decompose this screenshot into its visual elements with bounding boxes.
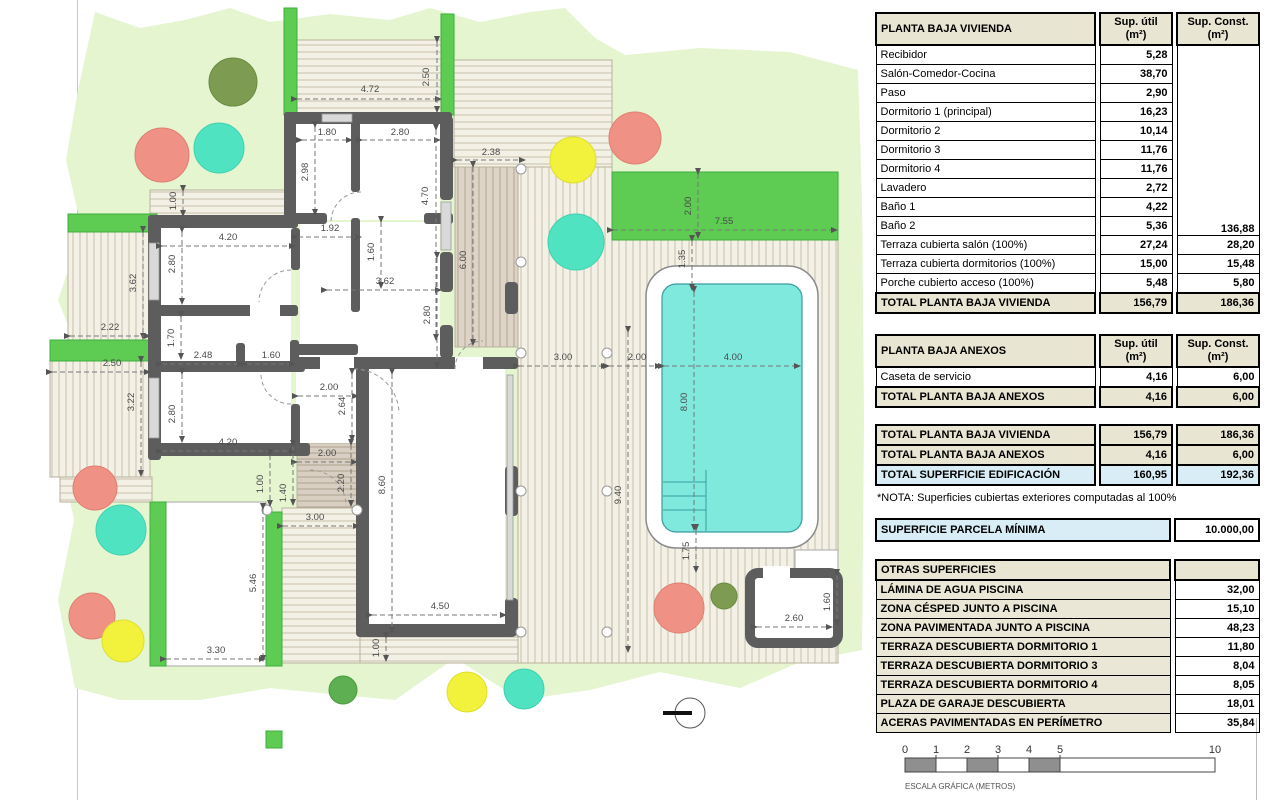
room-label-cell: Dormitorio 2 (876, 122, 1095, 141)
dim-label: 3.00 (554, 352, 573, 363)
hedge (284, 8, 297, 115)
dim-label: 2.00 (320, 382, 339, 393)
total-label-cell: TOTAL PLANTA BAJA VIVIENDA (876, 293, 1095, 313)
dim-label: 2.80 (167, 405, 178, 424)
area-value-cell: 27,24 (1100, 236, 1172, 255)
dim-label: 4.20 (219, 232, 238, 243)
architectural-plan-sheet: { "plan": { "dims": ["4.72","2.50","1.80… (0, 0, 1280, 800)
dim-label: 2.60 (785, 613, 804, 624)
scale-tick-label: 4 (1026, 744, 1032, 756)
dim-label: 1.00 (371, 639, 382, 658)
deck-south-strip (360, 637, 518, 663)
dim-label: 3.62 (128, 274, 139, 293)
surface-label-cell: TERRAZA DESCUBIERTA DORMITORIO 1 (876, 638, 1170, 657)
scale-tick-label: 5 (1057, 744, 1063, 756)
area-value-cell: 28,20 (1177, 236, 1259, 255)
hedge (441, 14, 454, 115)
terrace-dorm-west-2 (50, 361, 150, 477)
table-otras-superficies: OTRAS SUPERFICIES LÁMINA DE AGUA PISCINA… (875, 559, 1260, 733)
merged-const-cell: 136,88 (1177, 45, 1259, 236)
table-title: PLANTA BAJA ANEXOS (876, 335, 1095, 367)
dim-label: 2.48 (194, 350, 213, 361)
table-total-row: TOTAL PLANTA BAJA VIVIENDA156,79186,36 (876, 293, 1259, 313)
dim-label: 4.50 (431, 601, 450, 612)
parcela-value-cell: 10.000,00 (1175, 519, 1259, 541)
dim-label: 2.50 (103, 358, 122, 369)
dim-label: 1.80 (318, 127, 337, 138)
dim-label: 2.00 (318, 448, 337, 459)
dim-label: 1.60 (262, 350, 281, 361)
tree (73, 466, 117, 510)
total-value-cell: 192,36 (1177, 465, 1259, 485)
surface-value-cell: 11,80 (1175, 638, 1259, 657)
room-label-cell: Salón-Comedor-Cocina (876, 65, 1095, 84)
nota-text: *NOTA: Superficies cubiertas exteriores … (875, 492, 1258, 504)
room-label-cell: Recibidor (876, 45, 1095, 65)
surface-label-cell: ACERAS PAVIMENTADAS EN PERÍMETRO (876, 714, 1170, 733)
table-title: PLANTA BAJA VIVIENDA (876, 13, 1095, 45)
table-parcela-minima: SUPERFICIE PARCELA MÍNIMA 10.000,00 (875, 518, 1260, 542)
dim-label: 6.00 (458, 251, 469, 270)
table-total-row: TOTAL PLANTA BAJA ANEXOS4,166,00 (876, 445, 1259, 465)
tree (504, 669, 544, 709)
surface-label-cell: LÁMINA DE AGUA PISCINA (876, 580, 1170, 600)
tree (329, 676, 357, 704)
tree (447, 672, 487, 712)
scale-tick-label: 2 (964, 744, 970, 756)
table-row: TERRAZA DESCUBIERTA DORMITORIO 38,04 (876, 657, 1259, 676)
dim-label: 2.80 (422, 306, 433, 325)
dim-label: 4.72 (361, 84, 380, 95)
area-value-cell: 5,36 (1100, 217, 1172, 236)
surface-value-cell: 35,84 (1175, 714, 1259, 733)
table-row: LÁMINA DE AGUA PISCINA32,00 (876, 580, 1259, 600)
tree (102, 620, 144, 662)
room-label-cell: Terraza cubierta salón (100%) (876, 236, 1095, 255)
area-value-cell: 4,16 (1100, 367, 1172, 387)
dim-label: 1.75 (681, 542, 692, 561)
room-label-cell: Terraza cubierta dormitorios (100%) (876, 255, 1095, 274)
dim-label: 1.60 (822, 593, 833, 612)
surface-value-cell: 8,04 (1175, 657, 1259, 676)
dim-label: 9.40 (613, 486, 624, 505)
area-value-cell: 15,00 (1100, 255, 1172, 274)
dim-label: 1.00 (255, 475, 266, 494)
surface-label-cell: PLAZA DE GARAJE DESCUBIERTA (876, 695, 1170, 714)
area-tables-panel: PLANTA BAJA VIVIENDA Sup. útil(m²) Sup. … (875, 12, 1258, 733)
dim-label: 2.00 (628, 352, 647, 363)
dim-label: 2.80 (391, 127, 410, 138)
dim-label: 1.70 (166, 329, 177, 348)
room-label-cell: Paso (876, 84, 1095, 103)
salon-glazing (507, 375, 513, 600)
scale-tick-label: 3 (995, 744, 1001, 756)
column-header-sup-util: Sup. útil(m²) (1100, 13, 1172, 45)
table-row: TERRAZA DESCUBIERTA DORMITORIO 111,80 (876, 638, 1259, 657)
dim-label: 8.60 (377, 476, 388, 495)
parcela-label-cell: SUPERFICIE PARCELA MÍNIMA (876, 519, 1170, 541)
table-grand-total-row: TOTAL SUPERFICIE EDIFICACIÓN160,95192,36 (876, 465, 1259, 485)
area-value-cell: 11,76 (1100, 160, 1172, 179)
surface-value-cell: 8,05 (1175, 676, 1259, 695)
table-row: Terraza cubierta salón (100%)27,2428,20 (876, 236, 1259, 255)
total-label-cell: TOTAL PLANTA BAJA VIVIENDA (876, 425, 1095, 445)
room-label-cell: Dormitorio 3 (876, 141, 1095, 160)
surface-value-cell: 32,00 (1175, 580, 1259, 600)
hedge (266, 512, 282, 666)
room-label-cell: Lavadero (876, 179, 1095, 198)
table-row: SUPERFICIE PARCELA MÍNIMA 10.000,00 (876, 519, 1259, 541)
room-label-cell: Dormitorio 4 (876, 160, 1095, 179)
table-row: ZONA CÉSPED JUNTO A PISCINA15,10 (876, 600, 1259, 619)
table-row: ZONA PAVIMENTADA JUNTO A PISCINA48,23 (876, 619, 1259, 638)
total-value-cell: 186,36 (1177, 425, 1259, 445)
area-value-cell: 10,14 (1100, 122, 1172, 141)
north-marker-icon (663, 698, 705, 728)
total-label-cell: TOTAL SUPERFICIE EDIFICACIÓN (876, 465, 1095, 485)
area-value-cell: 2,72 (1100, 179, 1172, 198)
room-label-cell: Dormitorio 1 (principal) (876, 103, 1095, 122)
surface-label-cell: ZONA PAVIMENTADA JUNTO A PISCINA (876, 619, 1170, 638)
surface-value-cell: 15,10 (1175, 600, 1259, 619)
table-total-row: TOTAL PLANTA BAJA VIVIENDA156,79186,36 (876, 425, 1259, 445)
dim-label: 2.80 (167, 255, 178, 274)
column-header-sup-const: Sup. Const.(m²) (1177, 335, 1259, 367)
area-value-cell: 15,48 (1177, 255, 1259, 274)
tree (194, 123, 244, 173)
dim-label: 2.98 (300, 163, 311, 182)
surface-value-cell: 18,01 (1175, 695, 1259, 714)
total-value-cell: 186,36 (1177, 293, 1259, 313)
surface-label-cell: TERRAZA DESCUBIERTA DORMITORIO 4 (876, 676, 1170, 695)
area-value-cell: 5,48 (1100, 274, 1172, 294)
dim-label: 2.00 (683, 197, 694, 216)
dim-label: 2.22 (101, 322, 120, 333)
total-value-cell: 4,16 (1100, 445, 1172, 465)
total-label-cell: TOTAL PLANTA BAJA ANEXOS (876, 387, 1095, 407)
dim-label: 3.00 (306, 512, 325, 523)
room-label-cell: Caseta de servicio (876, 367, 1095, 387)
dim-label: 2.64 (337, 397, 348, 416)
hedge (68, 214, 157, 232)
total-value-cell: 4,16 (1100, 387, 1172, 407)
total-label-cell: TOTAL PLANTA BAJA ANEXOS (876, 445, 1095, 465)
total-value-cell: 156,79 (1100, 425, 1172, 445)
tree (654, 583, 704, 633)
table-resumen: TOTAL PLANTA BAJA VIVIENDA156,79186,36 T… (875, 424, 1260, 486)
dim-label: 1.00 (168, 192, 179, 211)
tree (550, 137, 596, 183)
dim-label: 7.55 (715, 216, 734, 227)
total-value-cell: 6,00 (1177, 445, 1259, 465)
column-header-sup-util: Sup. útil(m²) (1100, 335, 1172, 367)
table-total-row: TOTAL PLANTA BAJA ANEXOS4,166,00 (876, 387, 1259, 407)
dim-label: 2.20 (336, 474, 347, 493)
total-value-cell: 160,95 (1100, 465, 1172, 485)
area-value-cell: 4,22 (1100, 198, 1172, 217)
scale-caption: ESCALA GRÁFICA (METROS) (905, 782, 1016, 791)
dim-label: 1.40 (278, 484, 289, 503)
area-value-cell: 5,80 (1177, 274, 1259, 294)
dim-label: 1.92 (321, 223, 340, 234)
pool (646, 266, 818, 548)
dim-label: 2.50 (421, 68, 432, 87)
dim-label: 3.30 (207, 645, 226, 656)
dim-label: 1.60 (366, 243, 377, 262)
total-value-cell: 6,00 (1177, 387, 1259, 407)
area-value-cell: 38,70 (1100, 65, 1172, 84)
scale-tick-label: 10 (1209, 744, 1221, 756)
table-planta-baja-vivienda: PLANTA BAJA VIVIENDA Sup. útil(m²) Sup. … (875, 12, 1260, 314)
table-row: ACERAS PAVIMENTADAS EN PERÍMETRO35,84 (876, 714, 1259, 733)
table-row: Caseta de servicio4,166,00 (876, 367, 1259, 387)
scale-tick-label: 0 (902, 744, 908, 756)
tree (609, 112, 661, 164)
tree (548, 214, 604, 270)
table-row: Porche cubierto acceso (100%)5,485,80 (876, 274, 1259, 294)
graphic-scale: 0 1 2 3 4 5 10 ESCALA GRÁFICA (METROS) (902, 744, 1221, 791)
tree (96, 505, 146, 555)
table-row: PLAZA DE GARAJE DESCUBIERTA18,01 (876, 695, 1259, 714)
room-label-cell: Baño 1 (876, 198, 1095, 217)
area-value-cell: 11,76 (1100, 141, 1172, 160)
dim-label: 5.46 (248, 574, 259, 593)
dim-label: 1.35 (677, 250, 688, 269)
table-title: OTRAS SUPERFICIES (876, 560, 1170, 580)
deck-porch (297, 40, 441, 113)
surface-value-cell: 48,23 (1175, 619, 1259, 638)
surface-label-cell: TERRAZA DESCUBIERTA DORMITORIO 3 (876, 657, 1170, 676)
area-value-cell: 16,23 (1100, 103, 1172, 122)
dim-label: 4.70 (420, 187, 431, 206)
table-row: TERRAZA DESCUBIERTA DORMITORIO 48,05 (876, 676, 1259, 695)
scale-tick-label: 1 (933, 744, 939, 756)
room-label-cell: Porche cubierto acceso (100%) (876, 274, 1095, 294)
area-value-cell: 6,00 (1177, 367, 1259, 387)
total-value-cell: 156,79 (1100, 293, 1172, 313)
tree (711, 583, 737, 609)
tree (209, 58, 257, 106)
area-value-cell: 5,28 (1100, 45, 1172, 65)
dim-label: 4.00 (724, 352, 743, 363)
dim-label: 8.00 (679, 393, 690, 412)
surface-label-cell: ZONA CÉSPED JUNTO A PISCINA (876, 600, 1170, 619)
dim-label: 4.20 (219, 437, 238, 448)
table-row: Recibidor5,28136,88 (876, 45, 1259, 65)
area-value-cell: 2,90 (1100, 84, 1172, 103)
dim-label: 2.38 (482, 147, 501, 158)
room-label-cell: Baño 2 (876, 217, 1095, 236)
table-planta-baja-anexos: PLANTA BAJA ANEXOS Sup. útil(m²) Sup. Co… (875, 334, 1260, 408)
hedge (150, 502, 166, 666)
tree (135, 128, 189, 182)
column-header-sup-const: Sup. Const.(m²) (1177, 13, 1259, 45)
hedge (266, 731, 282, 748)
table-row: Terraza cubierta dormitorios (100%)15,00… (876, 255, 1259, 274)
dim-label: 3.62 (376, 276, 395, 287)
dim-label: 3.22 (126, 393, 137, 412)
deck-mid-south (282, 508, 360, 663)
table-row: OTRAS SUPERFICIES (876, 560, 1259, 580)
